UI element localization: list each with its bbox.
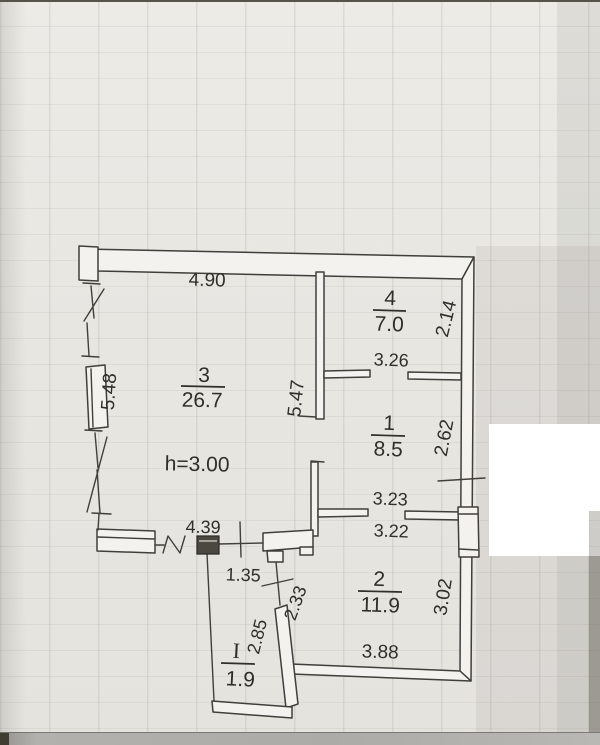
partition-326-right [408, 372, 461, 380]
wall-bottom-room2 [291, 664, 471, 681]
wall-piece-hall-room1 [311, 462, 318, 536]
photo-corner-chip [0, 733, 9, 745]
photo-bottom-edge [0, 732, 600, 745]
wall-bottom-left-thick [97, 529, 155, 553]
wall-top [83, 249, 474, 279]
wall-inner-room3-room4 [316, 272, 324, 419]
dim-loggia-side: 2.33 [280, 583, 311, 623]
left-tick-1 [83, 283, 100, 284]
wall-loggia-bottom [212, 701, 292, 718]
door-down-line [276, 562, 280, 605]
room-2-area: 11.9 [360, 593, 400, 617]
loggia-left-line [207, 553, 214, 701]
room-2-number: 2 [373, 568, 385, 591]
room-1-area: 8.5 [373, 438, 403, 462]
dim-room1-wall-top: 3.23 [372, 488, 408, 509]
wall-top-left-cap [79, 246, 98, 281]
dim-gap: 1.35 [225, 564, 261, 585]
left-tick-3 [85, 430, 102, 431]
room-I-number: I [232, 638, 241, 663]
room-4-underline [373, 310, 406, 311]
partition-322-right [405, 511, 461, 520]
left-bottom-stub [92, 513, 111, 530]
door-block-notch [267, 551, 283, 562]
wall-piece-cap-tick [311, 461, 324, 462]
dim-room1-wall-bottom: 3.22 [373, 520, 409, 541]
room-3-area: 26.7 [181, 389, 222, 413]
room-2-underline [358, 591, 402, 592]
wall-right [460, 257, 474, 681]
dim-room4-bottom: 3.26 [373, 349, 409, 370]
dim-room2-bottom: 3.88 [361, 641, 399, 663]
dim-loggia-wall: 2.85 [243, 617, 271, 656]
dim-inner-wall: 5.47 [284, 379, 309, 418]
dim-room1-side: 2.62 [431, 418, 459, 458]
room-4-area: 7.0 [374, 313, 404, 337]
photo-top-edge [0, 0, 600, 2]
scanned-floor-plan-photo: 3 26.7 4 7.0 1 8.5 2 11.9 I 1.9 h=3.00 4… [0, 0, 600, 745]
wall-break-icon-bottom [163, 536, 185, 553]
room-I-underline [221, 663, 255, 664]
left-tick-2 [82, 356, 99, 357]
room-3-underline [181, 386, 225, 387]
room-I-area: 1.9 [225, 667, 255, 691]
dim-top-width: 4.90 [188, 270, 226, 292]
room-4-number: 4 [384, 287, 397, 310]
room-3-number: 3 [198, 364, 210, 387]
door-block-step [300, 547, 313, 555]
partition-322-left [318, 509, 368, 517]
dim-hall-bottom: 4.39 [185, 517, 220, 538]
dim-room4-side: 2.14 [432, 298, 461, 339]
walls [79, 246, 479, 718]
floor-plan-drawing: 3 26.7 4 7.0 1 8.5 2 11.9 I 1.9 h=3.00 4… [0, 0, 600, 745]
partition-326-left [324, 370, 370, 378]
dark-block [197, 536, 219, 554]
dim-room2-side: 3.02 [430, 577, 457, 617]
ceiling-height-note: h=3.00 [165, 452, 230, 476]
dim-left-wall: 5.48 [98, 372, 122, 410]
redaction-patch [489, 424, 600, 556]
paper-shading [476, 0, 600, 745]
room-1-number: 1 [383, 412, 395, 435]
room-1-underline [371, 435, 405, 436]
wall-break-icon-left-upper [84, 286, 104, 356]
wall-break-icon-left-lower [87, 433, 107, 513]
dim-tick-439 [240, 522, 241, 557]
